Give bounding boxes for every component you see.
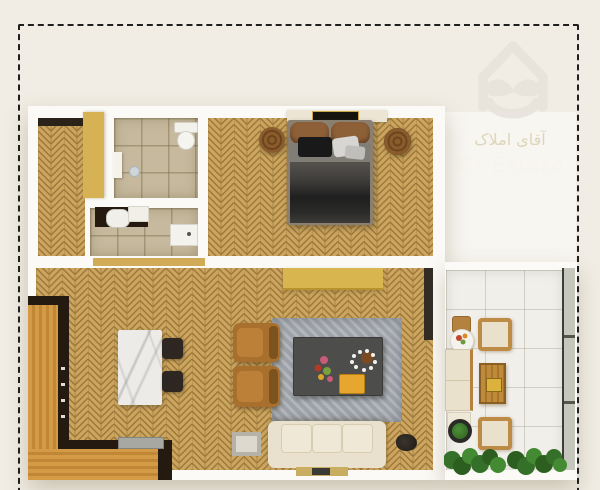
floorplan-render: آقای املاک Mr Estate [0, 0, 600, 490]
photo-dashed-border [18, 24, 579, 490]
